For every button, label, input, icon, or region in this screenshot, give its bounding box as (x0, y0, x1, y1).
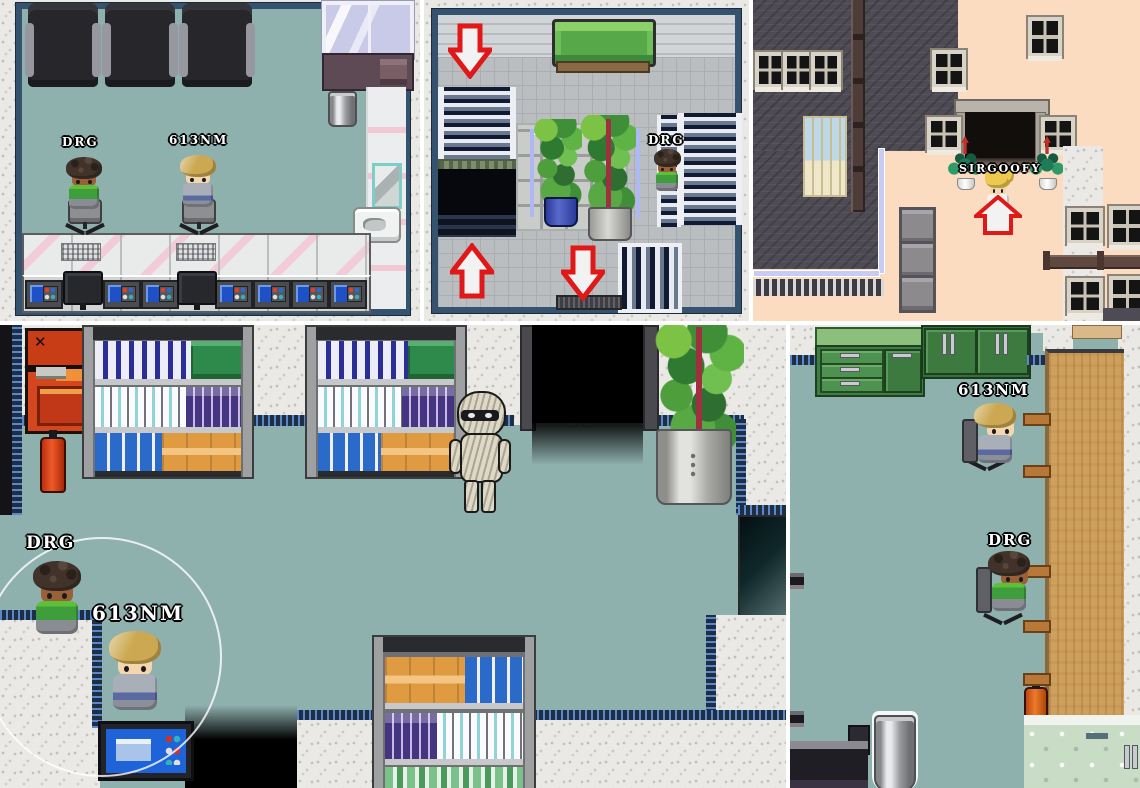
window (1109, 206, 1140, 246)
blue-binders (318, 433, 381, 471)
drain-pipe (851, 0, 865, 212)
nameplate-613nm: 613NM (958, 381, 1030, 399)
wall-base (1103, 308, 1140, 321)
panel-store: ✕◆ (0, 325, 786, 788)
room-map: DRG 613NM (16, 3, 410, 315)
green-boxes (408, 341, 454, 379)
nameplate-drg: DRG (988, 531, 1032, 549)
trash-can[interactable] (874, 715, 916, 788)
window (932, 50, 966, 88)
white-books (95, 387, 186, 427)
computer-monitor[interactable] (177, 271, 217, 305)
wooden-desk (322, 53, 414, 91)
roof-pipe-horizontal (753, 270, 880, 277)
purple-bottles (402, 387, 454, 427)
table-peg (1023, 673, 1051, 686)
window (783, 52, 813, 88)
couch-base (556, 61, 650, 73)
armchair (182, 3, 252, 87)
shelf-row (95, 387, 241, 433)
player-613nm[interactable] (106, 631, 164, 713)
hair (974, 403, 1015, 428)
table-peg (1023, 413, 1051, 426)
shelf-row (385, 657, 523, 709)
counter-handle (1086, 733, 1108, 739)
npc-mummy[interactable] (450, 391, 510, 511)
cabinet-handle (950, 333, 955, 355)
hair (180, 155, 216, 177)
escalator-right-b[interactable] (678, 113, 742, 225)
game-screenshot-collage: DRG 613NM (0, 0, 1140, 788)
mummy-leg (464, 480, 479, 513)
wall-trim (297, 710, 786, 720)
mummy-leg (481, 480, 496, 513)
armchair (28, 3, 98, 87)
store-shelf[interactable] (307, 327, 465, 477)
store-shelf[interactable] (374, 637, 534, 788)
panel-street: SIRGOOFY (753, 0, 1140, 321)
x-dial-icon: ✕ (34, 333, 47, 351)
control-panel[interactable] (141, 280, 179, 309)
plant-stem (606, 119, 611, 215)
wall-trim (738, 505, 786, 515)
drawer-handle (840, 381, 860, 386)
shelf-top (93, 327, 243, 340)
shelf-row (95, 341, 241, 385)
wall-trim (1027, 355, 1045, 365)
machine-dial (36, 367, 66, 379)
orange-boxes (162, 433, 241, 471)
body (113, 674, 157, 710)
mummy-arm (498, 439, 512, 474)
body (183, 183, 213, 207)
blue-binders (465, 657, 523, 703)
cabinet-handle (995, 333, 1000, 355)
hair (66, 157, 102, 179)
wooden-table (1045, 349, 1124, 737)
cabinet-handle (942, 333, 947, 355)
corner-wall (1043, 325, 1073, 351)
shelf-row (318, 341, 454, 385)
bottom-wall (297, 720, 786, 788)
wall-trim (736, 419, 746, 515)
control-panel[interactable] (215, 280, 253, 309)
window (1028, 17, 1062, 57)
window (1067, 278, 1103, 314)
control-panel[interactable] (329, 280, 367, 309)
body (978, 435, 1013, 462)
computer-monitor[interactable] (63, 271, 103, 305)
shelf-row (385, 767, 523, 788)
panel-computer-room: DRG 613NM (0, 0, 420, 321)
nameplate-drg: DRG (648, 133, 685, 147)
stairwell-steps (438, 215, 516, 237)
shelf-row (385, 713, 523, 765)
white-books (318, 387, 402, 427)
control-panel[interactable] (253, 280, 291, 309)
corner-wall (790, 333, 816, 357)
mummy-arm (449, 439, 463, 474)
chair-legs (68, 221, 102, 235)
control-panel[interactable] (25, 280, 63, 309)
wall-trim (12, 325, 22, 515)
purple-bottles (385, 713, 437, 759)
table-peg (1023, 620, 1051, 633)
staircase-up-left[interactable] (438, 87, 516, 159)
body (36, 601, 77, 634)
pipe-coupler (1097, 251, 1104, 270)
player-drg[interactable] (30, 561, 84, 637)
mummy-body (460, 433, 502, 483)
dark-doorway[interactable] (532, 325, 643, 423)
counter-handle (1132, 745, 1138, 769)
hair (988, 551, 1029, 576)
hair (654, 149, 681, 167)
nameplate-sirgoofy: SIRGOOFY (959, 162, 1041, 175)
orange-boxes (385, 657, 465, 703)
control-panel[interactable] (103, 280, 141, 309)
dark-counter-top (790, 741, 868, 749)
door-handle (892, 353, 912, 358)
table-end (1072, 325, 1122, 339)
roof-pipe-vertical (878, 148, 885, 274)
player-drg[interactable] (986, 551, 1032, 613)
gray-plant-pot (588, 207, 632, 241)
shelf-row (95, 433, 241, 477)
shelf-row (318, 387, 454, 433)
horizontal-pipe (1043, 255, 1140, 269)
blue-books (318, 341, 408, 379)
doorway-shadow (532, 419, 643, 465)
green-boxes (191, 341, 241, 379)
teleport-up-arrow-icon[interactable] (450, 243, 494, 299)
glass-cabinet (322, 1, 414, 59)
cabinet-handle (1003, 333, 1008, 355)
teleport-up-arrow-icon[interactable] (974, 195, 1022, 235)
hall-map: DRG (432, 9, 741, 313)
player-613nm[interactable] (178, 155, 218, 209)
teleport-down-arrow-icon[interactable] (561, 245, 605, 301)
nameplate-drg: DRG (26, 533, 75, 553)
window (811, 52, 841, 88)
drawer-handle (840, 367, 860, 372)
panel-dining-room: 613NM DRG (790, 325, 1140, 788)
table-peg (1023, 465, 1051, 478)
body (656, 172, 679, 191)
window (1067, 208, 1103, 244)
shelf-top (383, 637, 525, 652)
keyboard (176, 243, 216, 261)
wall-fixture (790, 711, 804, 727)
green-books (385, 767, 523, 788)
wall-edge (0, 325, 12, 515)
counter-handle (1124, 745, 1130, 769)
shelf-row (318, 433, 454, 477)
blue-binders (95, 433, 162, 471)
green-couch (552, 19, 656, 67)
orange-boxes (381, 433, 454, 471)
keyboard (61, 243, 101, 261)
crate (899, 275, 936, 313)
player-613nm[interactable] (972, 403, 1018, 465)
hair (109, 631, 161, 664)
drawer-handle (840, 353, 860, 358)
panel-stair-hall: DRG (424, 0, 749, 321)
window (755, 52, 785, 88)
chair-legs (182, 221, 216, 235)
plant-pot (957, 178, 975, 190)
player-drg[interactable] (64, 157, 104, 211)
hair (33, 561, 82, 591)
kitchen-counter (1024, 725, 1140, 788)
teleport-down-arrow-icon[interactable] (448, 23, 492, 79)
crate (899, 241, 936, 279)
side-window (738, 515, 786, 627)
crate (899, 207, 936, 245)
white-books (437, 713, 523, 759)
large-plant-pot (656, 429, 732, 505)
nameplate-613nm: 613NM (169, 133, 228, 147)
pipe-coupler (1043, 251, 1050, 270)
player-drg[interactable] (652, 149, 682, 193)
wall-trim (790, 355, 816, 365)
trash-can (328, 91, 357, 127)
nameplate-drg: DRG (62, 135, 99, 149)
purple-bottles (186, 387, 241, 427)
shelf-top (316, 327, 456, 340)
body (69, 185, 99, 209)
dark-counter (790, 749, 868, 788)
store-shelf[interactable] (84, 327, 252, 477)
window (927, 117, 961, 151)
blue-books (95, 341, 191, 379)
mirror (372, 163, 402, 209)
body (992, 583, 1027, 610)
roof-parapet (753, 279, 884, 296)
plant-stem (696, 327, 702, 445)
staircase-bottom-right[interactable] (618, 243, 682, 313)
blue-plant-pot (544, 197, 578, 227)
wall-trim (706, 615, 716, 721)
armchair (105, 3, 175, 87)
potted-plant (534, 119, 582, 209)
plant-pot (1039, 178, 1057, 190)
mummy-eyes (461, 410, 499, 421)
fire-extinguisher[interactable] (40, 437, 66, 493)
control-panel[interactable] (291, 280, 329, 309)
nameplate-613nm: 613NM (92, 601, 184, 625)
wall-fixture (790, 573, 804, 589)
glass-door[interactable] (803, 116, 847, 197)
